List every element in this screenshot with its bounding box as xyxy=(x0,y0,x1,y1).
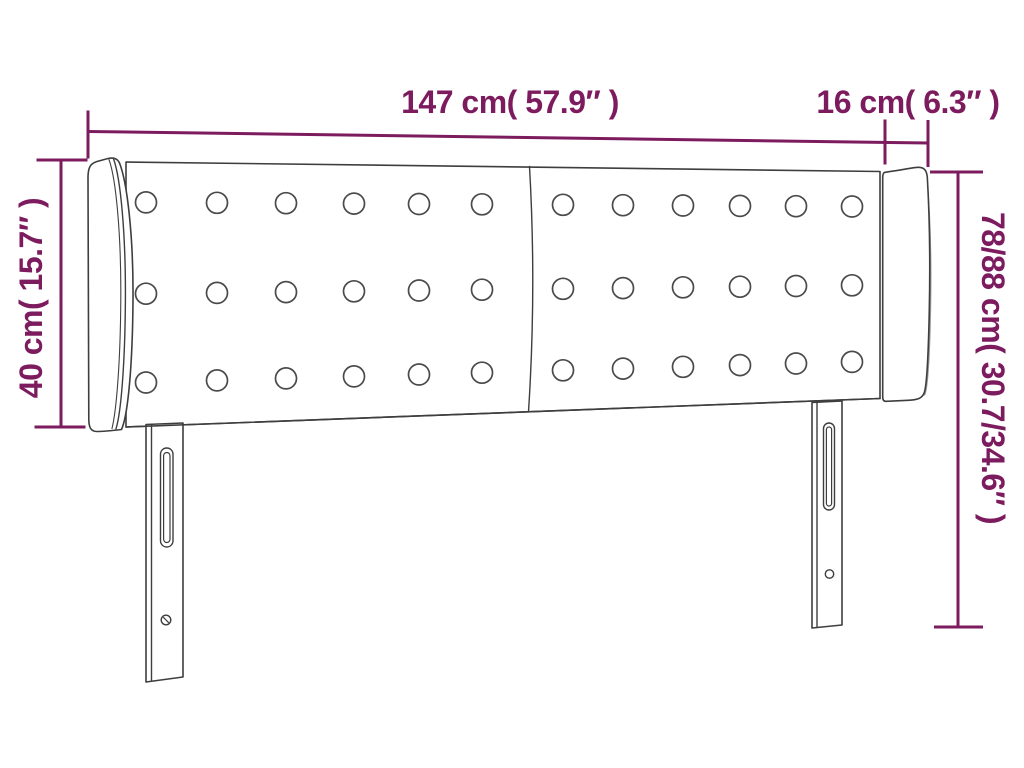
button-tuft xyxy=(409,280,430,301)
button-tuft xyxy=(553,360,574,381)
button-tuft xyxy=(409,194,430,215)
total-height-dimension: 78/88 cm( 30.7/34.6″ ) xyxy=(930,172,1011,627)
button-tuft xyxy=(673,356,694,377)
button-tuft xyxy=(344,281,365,302)
button-tuft xyxy=(472,194,493,215)
diagram-page: 147 cm( 57.9″ ) 16 cm( 6.3″ ) 40 cm( 15.… xyxy=(0,0,1024,768)
button-tuft xyxy=(673,277,694,298)
headboard-main-panel xyxy=(126,162,880,427)
button-tuft xyxy=(786,353,807,374)
button-tuft xyxy=(613,195,634,216)
button-tuft xyxy=(613,358,634,379)
button-tuft xyxy=(786,196,807,217)
right-leg xyxy=(812,401,842,628)
button-tuft xyxy=(207,282,228,303)
button-tuft xyxy=(136,192,157,213)
button-tuft xyxy=(842,351,863,372)
width-dimension-line xyxy=(88,132,928,144)
button-tuft xyxy=(136,372,157,393)
button-tuft xyxy=(730,195,751,216)
button-tuft xyxy=(613,278,634,299)
button-tuft xyxy=(553,278,574,299)
left-leg xyxy=(146,423,183,682)
wing-depth-label: 16 cm( 6.3″ ) xyxy=(816,84,999,120)
left-wing xyxy=(88,158,133,431)
button-tuft xyxy=(207,192,228,213)
button-tuft xyxy=(409,364,430,385)
button-tuft xyxy=(344,193,365,214)
button-tuft xyxy=(276,193,297,214)
button-tuft xyxy=(786,276,807,297)
button-tuft xyxy=(842,196,863,217)
button-tuft xyxy=(207,370,228,391)
right-wing xyxy=(883,167,930,401)
right-leg-screw-hole xyxy=(825,570,833,578)
left-leg-slot-inner xyxy=(164,453,170,543)
button-tuft xyxy=(673,195,694,216)
button-tuft xyxy=(553,194,574,215)
button-tuft xyxy=(344,366,365,387)
headboard-illustration xyxy=(88,158,930,682)
panel-height-dimension: 40 cm( 15.7″ ) xyxy=(13,160,88,427)
button-tuft xyxy=(730,355,751,376)
total-height-label: 78/88 cm( 30.7/34.6″ ) xyxy=(975,212,1011,524)
button-tuft xyxy=(276,368,297,389)
button-tuft xyxy=(276,282,297,303)
width-dimension: 147 cm( 57.9″ ) 16 cm( 6.3″ ) xyxy=(88,84,1000,167)
button-tuft xyxy=(472,362,493,383)
button-tuft xyxy=(472,279,493,300)
left-wing-body xyxy=(88,158,133,431)
button-tuft xyxy=(842,275,863,296)
button-tuft xyxy=(730,276,751,297)
button-tuft xyxy=(136,283,157,304)
headboard-dimension-diagram: 147 cm( 57.9″ ) 16 cm( 6.3″ ) 40 cm( 15.… xyxy=(0,0,1024,768)
right-leg-slot-inner xyxy=(826,427,831,506)
panel-height-label: 40 cm( 15.7″ ) xyxy=(13,198,49,398)
width-label: 147 cm( 57.9″ ) xyxy=(401,84,619,120)
right-wing-body xyxy=(883,167,930,401)
